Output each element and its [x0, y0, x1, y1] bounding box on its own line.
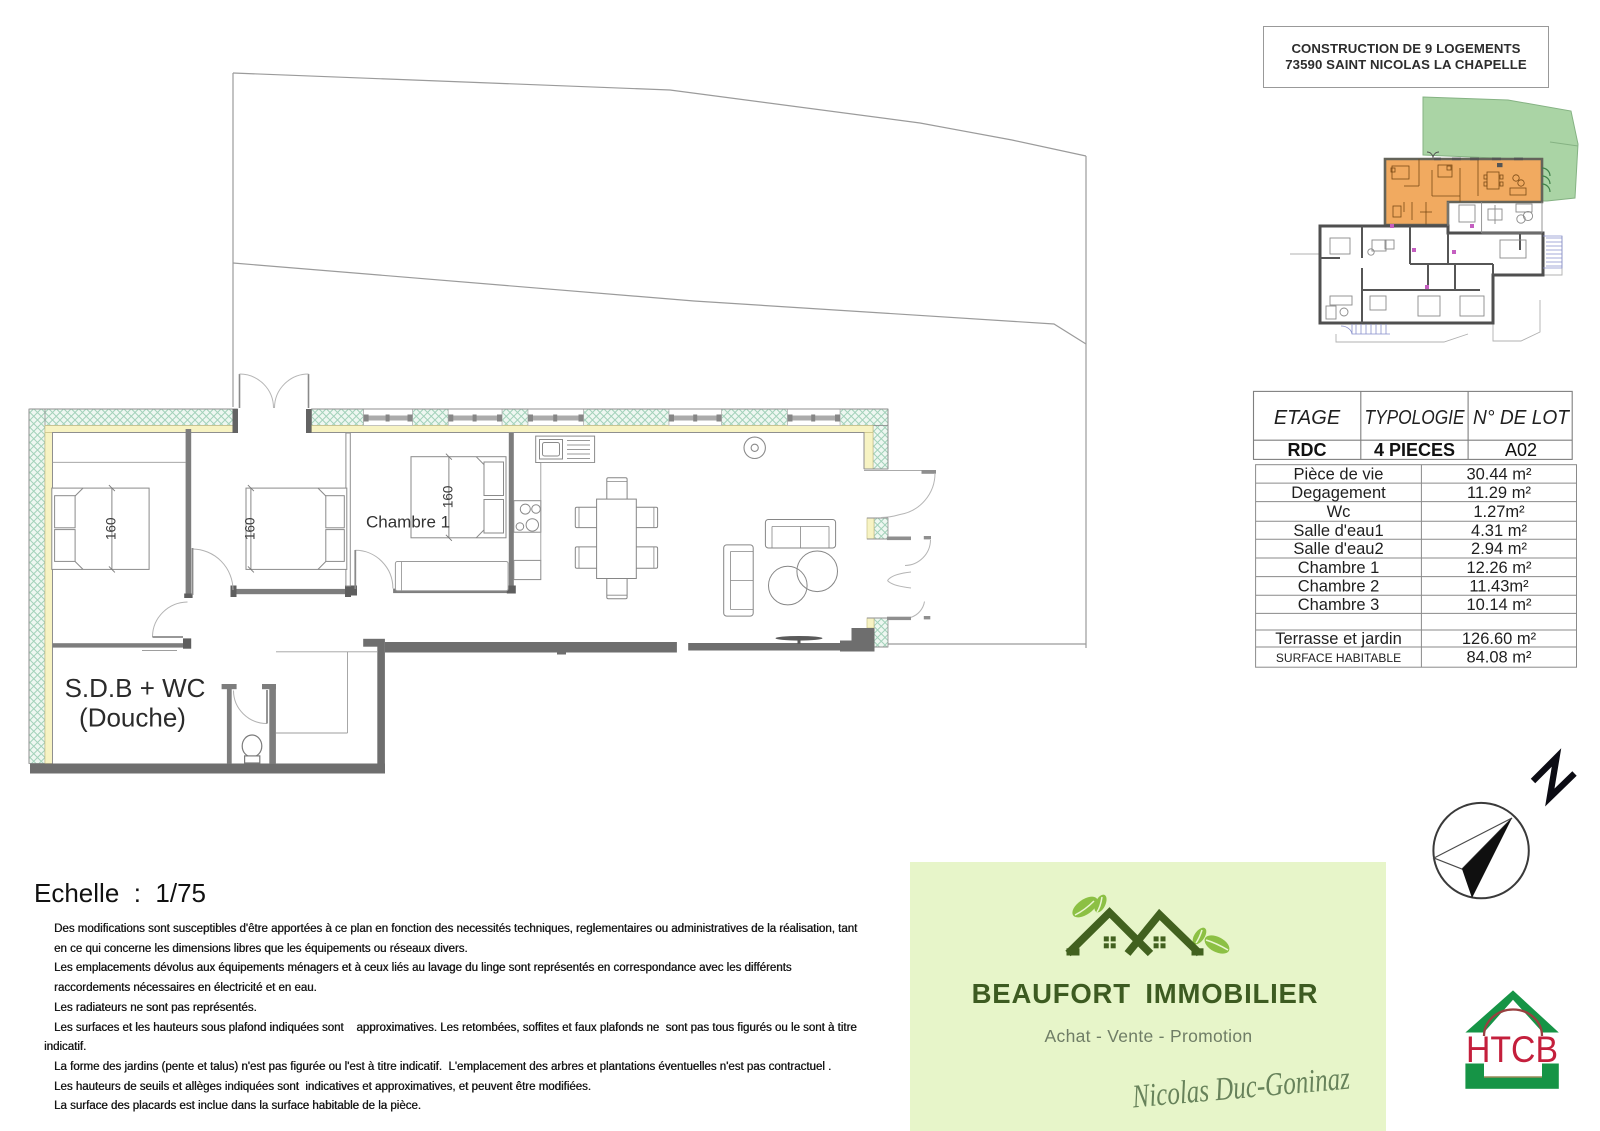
svg-text:ETAGE: ETAGE — [1274, 407, 1341, 429]
svg-text:11.43m²: 11.43m² — [1469, 578, 1529, 596]
svg-text:2.94 m²: 2.94 m² — [1471, 540, 1527, 558]
svg-text:160: 160 — [242, 517, 257, 540]
svg-text:Nicolas Duc-Goninaz: Nicolas Duc-Goninaz — [1130, 1061, 1351, 1116]
svg-text:Chambre 3: Chambre 3 — [1298, 596, 1380, 614]
svg-text:Degagement: Degagement — [1291, 484, 1386, 502]
svg-text:Chambre 2: Chambre 2 — [1298, 578, 1380, 596]
svg-text:A02: A02 — [1505, 440, 1537, 460]
svg-text:TYPOLOGIE: TYPOLOGIE — [1365, 407, 1466, 429]
svg-text:S.D.B + WC: S.D.B + WC — [65, 673, 206, 703]
svg-text:N° DE LOT: N° DE LOT — [1473, 407, 1571, 429]
svg-text:Wc: Wc — [1327, 503, 1351, 521]
svg-text:SURFACE HABITABLE: SURFACE HABITABLE — [1276, 651, 1401, 665]
svg-text:Terrasse et jardin: Terrasse et jardin — [1275, 630, 1402, 648]
svg-text:BEAUFORT IMMOBILIER: BEAUFORT IMMOBILIER — [972, 978, 1319, 1009]
svg-text:4.31 m²: 4.31 m² — [1471, 522, 1527, 540]
svg-text:4 PIECES: 4 PIECES — [1374, 440, 1455, 460]
svg-text:84.08 m²: 84.08 m² — [1466, 649, 1532, 667]
svg-text:11.29 m²: 11.29 m² — [1467, 484, 1531, 502]
svg-text:Salle d'eau1: Salle d'eau1 — [1293, 522, 1383, 540]
svg-text:160: 160 — [440, 486, 455, 509]
svg-text:10.14 m²: 10.14 m² — [1466, 596, 1532, 614]
svg-text:Salle d'eau2: Salle d'eau2 — [1293, 540, 1383, 558]
svg-text:HTCB: HTCB — [1466, 1029, 1558, 1070]
svg-text:RDC: RDC — [1288, 440, 1327, 460]
svg-text:Chambre 1: Chambre 1 — [366, 513, 450, 532]
svg-text:Achat - Vente - Promotion: Achat - Vente - Promotion — [1045, 1026, 1253, 1046]
svg-text:12.26 m²: 12.26 m² — [1466, 559, 1532, 577]
svg-text:Chambre 1: Chambre 1 — [1298, 559, 1380, 577]
svg-text:160: 160 — [103, 517, 118, 540]
svg-text:Pièce de vie: Pièce de vie — [1294, 466, 1384, 484]
svg-text:(Douche): (Douche) — [79, 703, 186, 733]
svg-text:1.27m²: 1.27m² — [1473, 503, 1525, 521]
svg-text:126.60 m²: 126.60 m² — [1462, 630, 1537, 648]
svg-text:30.44 m²: 30.44 m² — [1466, 466, 1532, 484]
